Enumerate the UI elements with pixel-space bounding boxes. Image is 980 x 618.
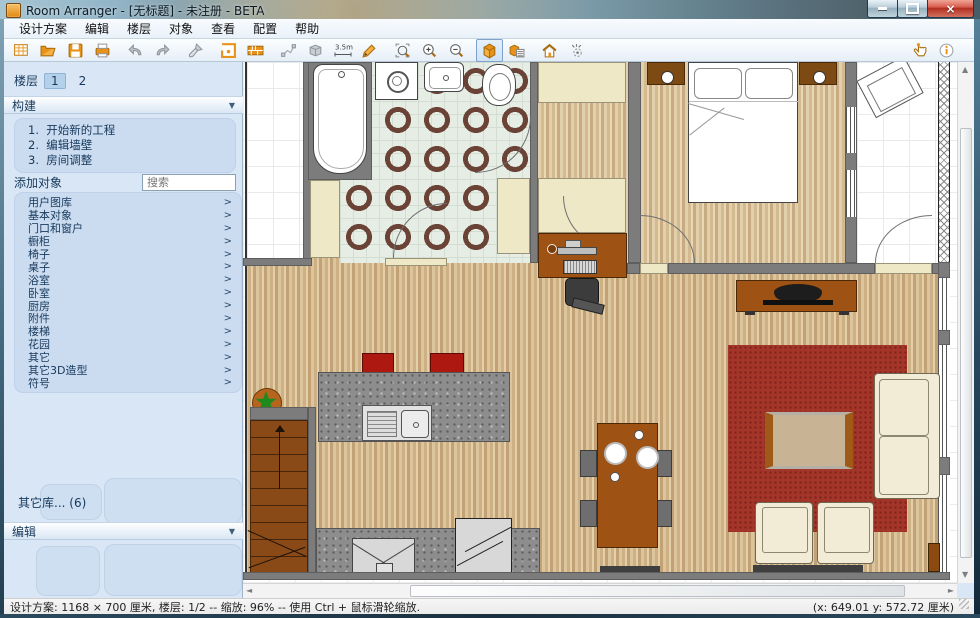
dropdown-icon: ▼	[229, 101, 235, 110]
dining-chair[interactable]	[580, 500, 597, 527]
wall	[530, 62, 538, 263]
step-new-project[interactable]: 1. 开始新的工程	[28, 123, 236, 138]
sidebar: 楼层 1 2 构建 ▼ 1. 开始新的工程 2. 编辑墙壁 3. 房间调整 添加…	[4, 62, 243, 598]
blanket-fold	[689, 108, 724, 136]
chevron-right-icon: >	[224, 313, 232, 324]
sofa[interactable]	[874, 373, 940, 499]
status-bar: 设计方案: 1168 × 700 厘米, 楼层: 1/2 -- 缩放: 96% …	[4, 598, 974, 614]
category-chairs[interactable]: 椅子>	[28, 248, 232, 261]
measure-label: 3.5m	[335, 43, 353, 51]
measure-icon: 3.5m	[333, 42, 353, 59]
undo-button[interactable]	[122, 39, 149, 62]
redo-button[interactable]	[149, 39, 176, 62]
armchair[interactable]	[817, 502, 874, 564]
new-project-icon	[13, 42, 30, 59]
vertical-scrollbar[interactable]: ▲ ▼	[957, 62, 974, 583]
category-bedroom[interactable]: 卧室>	[28, 286, 232, 299]
floors-row: 楼层 1 2	[14, 72, 93, 89]
chevron-right-icon: >	[224, 339, 232, 350]
view-3d-button[interactable]	[476, 39, 503, 62]
wall	[668, 263, 875, 274]
armchair[interactable]	[755, 502, 813, 564]
polyline-button[interactable]	[275, 39, 302, 62]
wall	[308, 407, 316, 580]
tv	[774, 284, 822, 300]
library-panel-large	[104, 478, 242, 524]
draw-button[interactable]	[356, 39, 383, 62]
wall-button[interactable]	[242, 39, 269, 62]
save-icon	[67, 42, 84, 59]
menu-design[interactable]: 设计方案	[10, 18, 76, 39]
category-misc-3d[interactable]: 其它3D造型>	[28, 364, 232, 377]
toilet[interactable]	[482, 64, 516, 106]
chevron-right-icon: >	[224, 197, 232, 208]
edit-header-label: 编辑	[12, 523, 36, 540]
window-border-left	[0, 19, 4, 618]
menu-objects[interactable]: 对象	[160, 18, 202, 39]
wall	[243, 258, 312, 266]
zoom-in-button[interactable]	[416, 39, 443, 62]
add-objects-label: 添加对象	[14, 174, 62, 191]
floor-plan-canvas[interactable]	[243, 62, 957, 583]
bathroom-cabinet[interactable]	[497, 178, 530, 254]
wall	[250, 407, 308, 420]
step-adjust-rooms[interactable]: 3. 房间调整	[28, 153, 236, 168]
status-cursor-coordinates: (x: 649.01 y: 572.72 厘米)	[813, 599, 954, 615]
polyline-icon	[280, 42, 297, 59]
keyboard	[563, 260, 597, 274]
edit-panel-large	[104, 544, 242, 596]
dining-table[interactable]	[597, 423, 658, 548]
pillow	[745, 68, 793, 99]
chevron-right-icon: >	[224, 365, 232, 376]
wall	[845, 62, 857, 263]
horizontal-scrollbar[interactable]: ◄ ►	[243, 583, 957, 598]
move-3d-button[interactable]	[302, 39, 329, 62]
maximize-icon	[906, 3, 919, 14]
toolbar: 3.5m	[4, 39, 974, 62]
door-mat[interactable]	[600, 566, 660, 572]
print-icon	[94, 42, 111, 59]
menu-edit[interactable]: 编辑	[76, 18, 118, 39]
build-steps-panel: 1. 开始新的工程 2. 编辑墙壁 3. 房间调整	[14, 118, 236, 173]
print-button[interactable]	[89, 39, 116, 62]
minimize-button[interactable]	[867, 0, 898, 18]
view-3d-objects-icon	[508, 42, 525, 59]
wall-icon	[247, 42, 264, 59]
wardrobe[interactable]	[538, 62, 626, 103]
zoom-selection-icon	[394, 42, 411, 59]
minimize-icon	[878, 7, 887, 10]
door-threshold[interactable]	[875, 263, 932, 274]
white-room-left-floor	[247, 62, 303, 258]
chevron-right-icon: >	[224, 249, 232, 260]
category-accessories[interactable]: 附件>	[28, 312, 232, 325]
office-desk[interactable]	[538, 233, 627, 278]
open-folder-icon	[40, 42, 57, 59]
close-icon: ×	[945, 4, 955, 14]
resize-grip[interactable]	[959, 599, 969, 609]
info-button[interactable]	[933, 39, 960, 62]
sofa-cushion	[879, 379, 929, 436]
menu-floors[interactable]: 楼层	[118, 18, 160, 39]
search-input[interactable]	[142, 174, 236, 191]
build-header-label: 构建	[12, 97, 36, 114]
coffee-table[interactable]	[765, 412, 853, 469]
edit-section-header[interactable]: 编辑 ▼	[4, 522, 243, 540]
format-brush-icon	[187, 42, 204, 59]
office-chair[interactable]	[565, 278, 599, 306]
sink-basin	[401, 410, 429, 438]
bathtub[interactable]	[313, 64, 367, 174]
bathroom-cabinet[interactable]	[310, 180, 340, 258]
window-border-right	[974, 19, 980, 618]
blanket-fold	[688, 103, 744, 120]
pillow	[694, 68, 742, 99]
plate	[604, 442, 627, 465]
new-project-button[interactable]	[8, 39, 35, 62]
step-edit-walls[interactable]: 2. 编辑墙壁	[28, 138, 236, 153]
info-icon	[938, 42, 955, 59]
kitchen-island[interactable]	[318, 372, 510, 442]
build-section-header[interactable]: 构建 ▼	[4, 96, 243, 114]
add-objects-row: 添加对象	[14, 174, 236, 191]
nightstand[interactable]	[799, 62, 837, 85]
zoom-in-icon	[421, 42, 438, 59]
walk-mode-icon	[568, 42, 585, 59]
title-bar[interactable]: Room Arranger - [无标题] - 未注册 - BETA ×	[0, 0, 980, 20]
room-plan-button[interactable]	[215, 39, 242, 62]
stairs-direction-arrow	[275, 425, 285, 432]
kitchen-sink-unit	[362, 405, 432, 441]
view-3d-icon	[481, 42, 498, 59]
floor-button-1[interactable]: 1	[44, 73, 66, 89]
app-icon	[6, 3, 21, 18]
home-3d-icon	[541, 42, 558, 59]
wall	[938, 330, 950, 345]
undo-icon	[127, 42, 144, 59]
chevron-right-icon: >	[224, 352, 232, 363]
menu-view[interactable]: 查看	[202, 18, 244, 39]
floors-label: 楼层	[14, 72, 38, 89]
home-3d-button[interactable]	[536, 39, 563, 62]
zoom-out-button[interactable]	[443, 39, 470, 62]
refrigerator[interactable]	[455, 518, 512, 574]
stairs-direction-line	[279, 429, 280, 489]
chevron-right-icon: >	[224, 326, 232, 337]
window[interactable]	[846, 170, 856, 217]
move-3d-icon	[307, 42, 324, 59]
chevron-right-icon: >	[224, 300, 232, 311]
measure-button[interactable]: 3.5m	[329, 39, 356, 62]
chevron-right-icon: >	[224, 223, 232, 234]
menu-bar: 设计方案 编辑 楼层 对象 查看 配置 帮助	[4, 19, 974, 39]
double-bed[interactable]	[688, 62, 798, 203]
cooker-hood[interactable]	[352, 538, 415, 574]
category-doors-windows[interactable]: 门口和窗户>	[28, 222, 232, 235]
tub-drain	[338, 71, 345, 78]
sofa-cushion	[879, 436, 929, 495]
dropdown-icon: ▼	[229, 527, 235, 536]
monitor	[557, 247, 597, 255]
door-mat[interactable]	[753, 565, 863, 572]
chevron-right-icon: >	[224, 287, 232, 298]
bathroom-sink[interactable]	[424, 62, 464, 92]
status-design-info: 设计方案: 1168 × 700 厘米, 楼层: 1/2 -- 缩放: 96% …	[10, 599, 420, 615]
caption-buttons: ×	[868, 0, 974, 18]
desk-lamp	[547, 244, 557, 254]
zoom-selection-button[interactable]	[389, 39, 416, 62]
cup	[634, 430, 644, 440]
category-kitchen[interactable]: 厨房>	[28, 299, 232, 312]
category-bathroom[interactable]: 浴室>	[28, 273, 232, 286]
glass-wall-window[interactable]	[938, 62, 950, 262]
open-button[interactable]	[35, 39, 62, 62]
room-plan-icon	[220, 42, 237, 59]
category-tables[interactable]: 桌子>	[28, 260, 232, 273]
category-garden[interactable]: 花园>	[28, 338, 232, 351]
cup	[610, 472, 620, 482]
wall	[938, 262, 950, 278]
nightstand[interactable]	[647, 62, 685, 85]
bedside-lamp	[813, 71, 826, 84]
speaker[interactable]	[928, 543, 940, 572]
door-threshold[interactable]	[640, 263, 668, 274]
view-3d-objects-button[interactable]	[503, 39, 530, 62]
maximize-button[interactable]	[897, 0, 928, 18]
category-symbols[interactable]: 符号>	[28, 376, 232, 389]
scroll-down-icon[interactable]: ▼	[962, 571, 968, 579]
floor-button-2[interactable]: 2	[72, 73, 94, 89]
scroll-up-icon[interactable]: ▲	[962, 66, 968, 74]
chevron-right-icon: >	[224, 210, 232, 221]
bedside-lamp	[661, 71, 674, 84]
category-cabinets[interactable]: 橱柜>	[28, 235, 232, 248]
window-border-bottom	[0, 614, 980, 618]
zoom-out-icon	[448, 42, 465, 59]
tv-stand	[763, 300, 833, 305]
washing-machine[interactable]	[375, 62, 418, 100]
chevron-right-icon: >	[224, 236, 232, 247]
format-brush-button[interactable]	[182, 39, 209, 62]
close-button[interactable]: ×	[927, 0, 974, 18]
category-stairs[interactable]: 楼梯>	[28, 325, 232, 338]
dining-chair[interactable]	[580, 450, 597, 477]
menu-config[interactable]: 配置	[244, 18, 286, 39]
hand-pointer-icon	[911, 42, 928, 59]
other-libraries-link[interactable]: 其它库... (6)	[18, 494, 86, 511]
edit-panel-small	[36, 546, 100, 596]
redo-icon	[154, 42, 171, 59]
window[interactable]	[938, 278, 950, 330]
door-threshold[interactable]	[385, 258, 447, 266]
staircase[interactable]	[250, 420, 308, 574]
window-title: Room Arranger - [无标题] - 未注册 - BETA	[26, 2, 264, 19]
chevron-right-icon: >	[224, 261, 232, 272]
app-window: Room Arranger - [无标题] - 未注册 - BETA × 设计方…	[0, 0, 980, 618]
scroll-right-icon[interactable]: ►	[948, 587, 954, 595]
plate	[636, 446, 659, 469]
tv-cabinet[interactable]	[736, 280, 857, 312]
pointer-button[interactable]	[906, 39, 933, 62]
drainboard	[367, 411, 397, 437]
wall	[627, 263, 640, 274]
wall	[243, 572, 950, 580]
save-button[interactable]	[62, 39, 89, 62]
vertical-scroll-thumb[interactable]	[960, 128, 972, 558]
chevron-right-icon: >	[224, 274, 232, 285]
scroll-left-icon[interactable]: ◄	[246, 587, 252, 595]
draw-pencil-icon	[361, 42, 378, 59]
window[interactable]	[846, 107, 856, 153]
horizontal-scroll-thumb[interactable]	[410, 585, 905, 597]
menu-help[interactable]: 帮助	[286, 18, 328, 39]
walk-mode-button[interactable]	[563, 39, 590, 62]
categories-panel: 用户图库> 基本对象> 门口和窗户> 橱柜> 椅子> 桌子> 浴室> 卧室> 厨…	[14, 192, 242, 393]
chevron-right-icon: >	[224, 377, 232, 388]
